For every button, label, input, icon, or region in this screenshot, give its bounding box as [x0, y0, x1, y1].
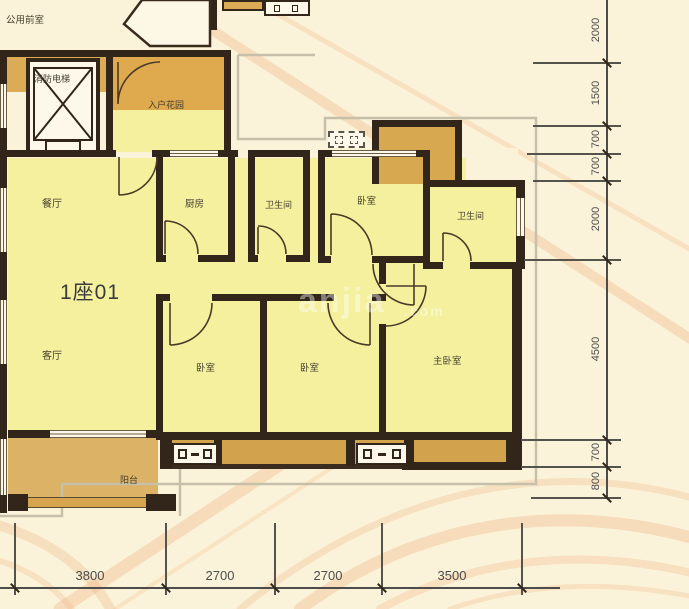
label-balcony: 阳台 — [120, 476, 138, 485]
label-entry-garden: 入户花园 — [148, 101, 184, 110]
label-bedroom-top: 卧室 — [357, 197, 376, 207]
label-bathroom-2: 卫生间 — [457, 212, 484, 221]
dim-chain-bottom — [0, 587, 560, 589]
dim-right-1500: 1500 — [590, 71, 602, 115]
label-living: 客厅 — [42, 352, 62, 362]
label-bedroom-left: 卧室 — [196, 364, 215, 374]
dim-bottom-2700a: 2700 — [190, 568, 250, 583]
dim-right-800: 800 — [590, 459, 602, 503]
dim-right-4500: 4500 — [590, 327, 602, 371]
ac-platform-icon — [356, 443, 408, 465]
ac-platform-icon — [172, 443, 218, 465]
label-fire-elevator: 消防电梯 — [34, 75, 70, 84]
label-kitchen: 厨房 — [185, 200, 204, 210]
label-master-bedroom: 主卧室 — [433, 357, 462, 367]
floorplan-canvas: 公用前室 消防电梯 入户花园 餐厅 厨房 卫生间 卧室 卫生间 1座01 客厅 … — [0, 0, 689, 609]
unit-number: 1座01 — [60, 276, 120, 306]
watermark-text: anjia — [298, 282, 385, 321]
dim-chain-right — [606, 0, 608, 498]
dim-right-2000a: 2000 — [590, 8, 602, 52]
balcony-rail — [28, 497, 146, 508]
label-dining: 餐厅 — [42, 200, 62, 210]
dim-bottom-3500: 3500 — [422, 568, 482, 583]
label-bedroom-middle: 卧室 — [300, 364, 319, 374]
watermark-suffix: .com — [404, 303, 445, 319]
label-public-front-room: 公用前室 — [6, 16, 44, 26]
dim-bottom-3800: 3800 — [60, 568, 120, 583]
dim-right-2000b: 2000 — [590, 197, 602, 241]
dim-bottom-2700b: 2700 — [298, 568, 358, 583]
label-bathroom-1: 卫生间 — [265, 201, 292, 210]
dim-right-700b: 700 — [590, 144, 602, 188]
